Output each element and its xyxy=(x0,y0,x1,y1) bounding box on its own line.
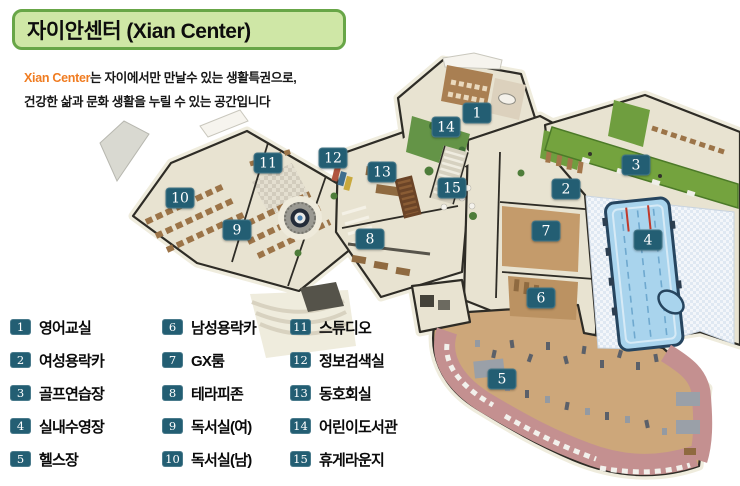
legend-badge-5: 5 xyxy=(10,451,31,467)
legend-badge-11: 11 xyxy=(290,319,311,335)
legend-badge-10: 10 xyxy=(162,451,183,467)
legend-label-6: 남성용락카 xyxy=(191,317,256,338)
legend-item-13: 13동호회실 xyxy=(290,382,440,404)
map-marker-9: 9 xyxy=(223,220,252,241)
legend-item-7: 7GX룸 xyxy=(162,349,290,371)
legend-item-9: 9독서실(여) xyxy=(162,415,290,437)
legend-label-4: 실내수영장 xyxy=(39,416,104,437)
legend-column-2: 6남성용락카7GX룸8테라피존9독서실(여)10독서실(남) xyxy=(162,316,290,470)
legend-item-10: 10독서실(남) xyxy=(162,448,290,470)
map-marker-3: 3 xyxy=(622,155,651,176)
legend-item-11: 11스튜디오 xyxy=(290,316,440,338)
legend-label-12: 정보검색실 xyxy=(319,350,384,371)
legend-badge-7: 7 xyxy=(162,352,183,368)
map-marker-1: 1 xyxy=(463,103,492,124)
map-marker-8: 8 xyxy=(356,229,385,250)
tagline-line1-rest: 는 자이에서만 만날수 있는 생활특권으로, xyxy=(90,71,296,85)
legend-label-8: 테라피존 xyxy=(191,383,243,404)
map-marker-7: 7 xyxy=(532,221,561,242)
map-marker-6: 6 xyxy=(527,288,556,309)
legend-badge-14: 14 xyxy=(290,418,311,434)
legend-item-6: 6남성용락카 xyxy=(162,316,290,338)
legend-badge-12: 12 xyxy=(290,352,311,368)
legend-label-1: 영어교실 xyxy=(39,317,91,338)
page-title: 자이안센터 (Xian Center) xyxy=(27,15,251,45)
tagline-line2: 건강한 삶과 문화 생활을 누릴 수 있는 공간입니다 xyxy=(24,90,296,114)
legend: 1영어교실2여성용락카3골프연습장4실내수영장5헬스장6남성용락카7GX룸8테라… xyxy=(10,316,440,470)
legend-badge-2: 2 xyxy=(10,352,31,368)
legend-column-1: 1영어교실2여성용락카3골프연습장4실내수영장5헬스장 xyxy=(10,316,162,470)
map-marker-10: 10 xyxy=(166,188,195,209)
legend-item-8: 8테라피존 xyxy=(162,382,290,404)
map-marker-11: 11 xyxy=(254,153,283,174)
legend-item-1: 1영어교실 xyxy=(10,316,162,338)
legend-badge-4: 4 xyxy=(10,418,31,434)
legend-label-14: 어린이도서관 xyxy=(319,416,397,437)
legend-badge-9: 9 xyxy=(162,418,183,434)
legend-badge-13: 13 xyxy=(290,385,311,401)
legend-badge-8: 8 xyxy=(162,385,183,401)
map-marker-15: 15 xyxy=(438,178,467,199)
legend-label-3: 골프연습장 xyxy=(39,383,104,404)
legend-item-12: 12정보검색실 xyxy=(290,349,440,371)
map-marker-2: 2 xyxy=(552,179,581,200)
map-marker-12: 12 xyxy=(319,148,348,169)
tagline-brand: Xian Center xyxy=(24,71,90,85)
map-marker-13: 13 xyxy=(368,162,397,183)
legend-badge-3: 3 xyxy=(10,385,31,401)
legend-item-4: 4실내수영장 xyxy=(10,415,162,437)
legend-label-10: 독서실(남) xyxy=(191,449,251,470)
tagline: Xian Center는 자이에서만 만날수 있는 생활특권으로, 건강한 삶과… xyxy=(24,66,296,114)
legend-badge-1: 1 xyxy=(10,319,31,335)
legend-label-5: 헬스장 xyxy=(39,449,78,470)
legend-label-15: 휴게라운지 xyxy=(319,449,384,470)
swimming-pool xyxy=(586,196,734,351)
legend-label-11: 스튜디오 xyxy=(319,317,371,338)
legend-label-13: 동호회실 xyxy=(319,383,371,404)
legend-column-3: 11스튜디오12정보검색실13동호회실14어린이도서관15휴게라운지 xyxy=(290,316,440,470)
legend-item-15: 15휴게라운지 xyxy=(290,448,440,470)
legend-label-2: 여성용락카 xyxy=(39,350,104,371)
legend-item-14: 14어린이도서관 xyxy=(290,415,440,437)
map-marker-14: 14 xyxy=(432,117,461,138)
map-marker-5: 5 xyxy=(488,369,517,390)
title-banner: 자이안센터 (Xian Center) xyxy=(12,9,346,50)
legend-item-5: 5헬스장 xyxy=(10,448,162,470)
legend-label-7: GX룸 xyxy=(191,350,224,371)
map-marker-4: 4 xyxy=(634,230,663,251)
legend-item-3: 3골프연습장 xyxy=(10,382,162,404)
legend-label-9: 독서실(여) xyxy=(191,416,251,437)
fountain xyxy=(278,196,322,240)
legend-badge-6: 6 xyxy=(162,319,183,335)
legend-item-2: 2여성용락카 xyxy=(10,349,162,371)
legend-badge-15: 15 xyxy=(290,451,311,467)
tagline-line1: Xian Center는 자이에서만 만날수 있는 생활특권으로, xyxy=(24,66,296,90)
